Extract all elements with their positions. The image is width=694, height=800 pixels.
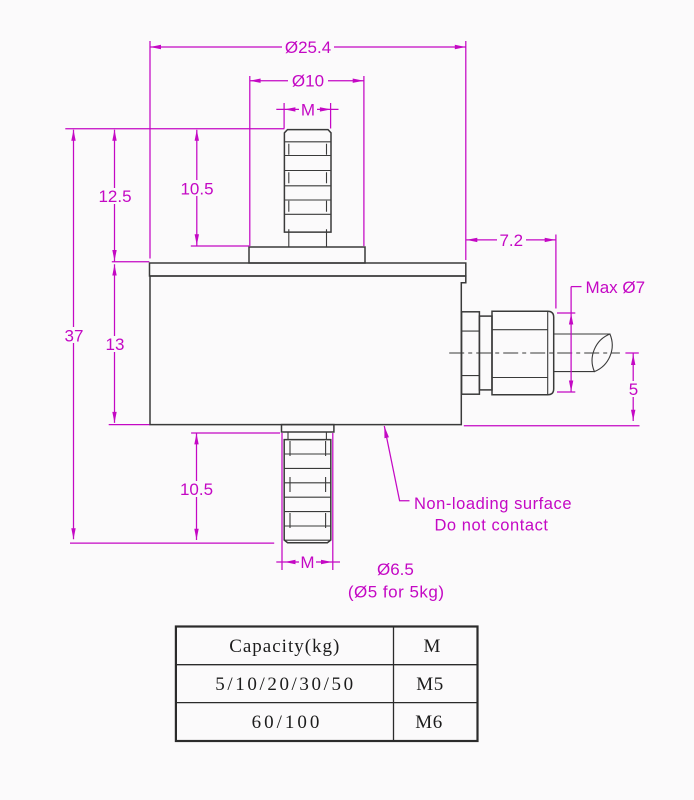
svg-text:M: M [301, 100, 315, 119]
svg-text:Max Ø7: Max Ø7 [586, 278, 646, 297]
svg-text:7.2: 7.2 [499, 231, 523, 250]
svg-text:Non-loading surface: Non-loading surface [414, 495, 572, 513]
svg-text:M: M [424, 636, 441, 657]
svg-text:13: 13 [106, 335, 125, 354]
svg-text:Ø10: Ø10 [292, 72, 324, 91]
svg-text:60/100: 60/100 [252, 712, 323, 733]
svg-text:M6: M6 [415, 712, 442, 733]
svg-text:37: 37 [65, 327, 84, 346]
svg-text:M5: M5 [416, 674, 443, 695]
svg-text:Do not contact: Do not contact [434, 517, 548, 535]
svg-text:10.5: 10.5 [180, 480, 213, 499]
svg-text:Capacity(kg): Capacity(kg) [229, 636, 340, 657]
svg-text:5: 5 [629, 380, 638, 399]
svg-text:Ø25.4: Ø25.4 [285, 38, 331, 57]
svg-text:5/10/20/30/50: 5/10/20/30/50 [215, 674, 355, 695]
svg-text:Ø6.5: Ø6.5 [377, 560, 414, 579]
svg-text:(Ø5 for 5kg): (Ø5 for 5kg) [348, 582, 445, 601]
svg-text:M: M [300, 553, 314, 572]
svg-text:10.5: 10.5 [180, 180, 213, 199]
svg-text:12.5: 12.5 [98, 187, 131, 206]
